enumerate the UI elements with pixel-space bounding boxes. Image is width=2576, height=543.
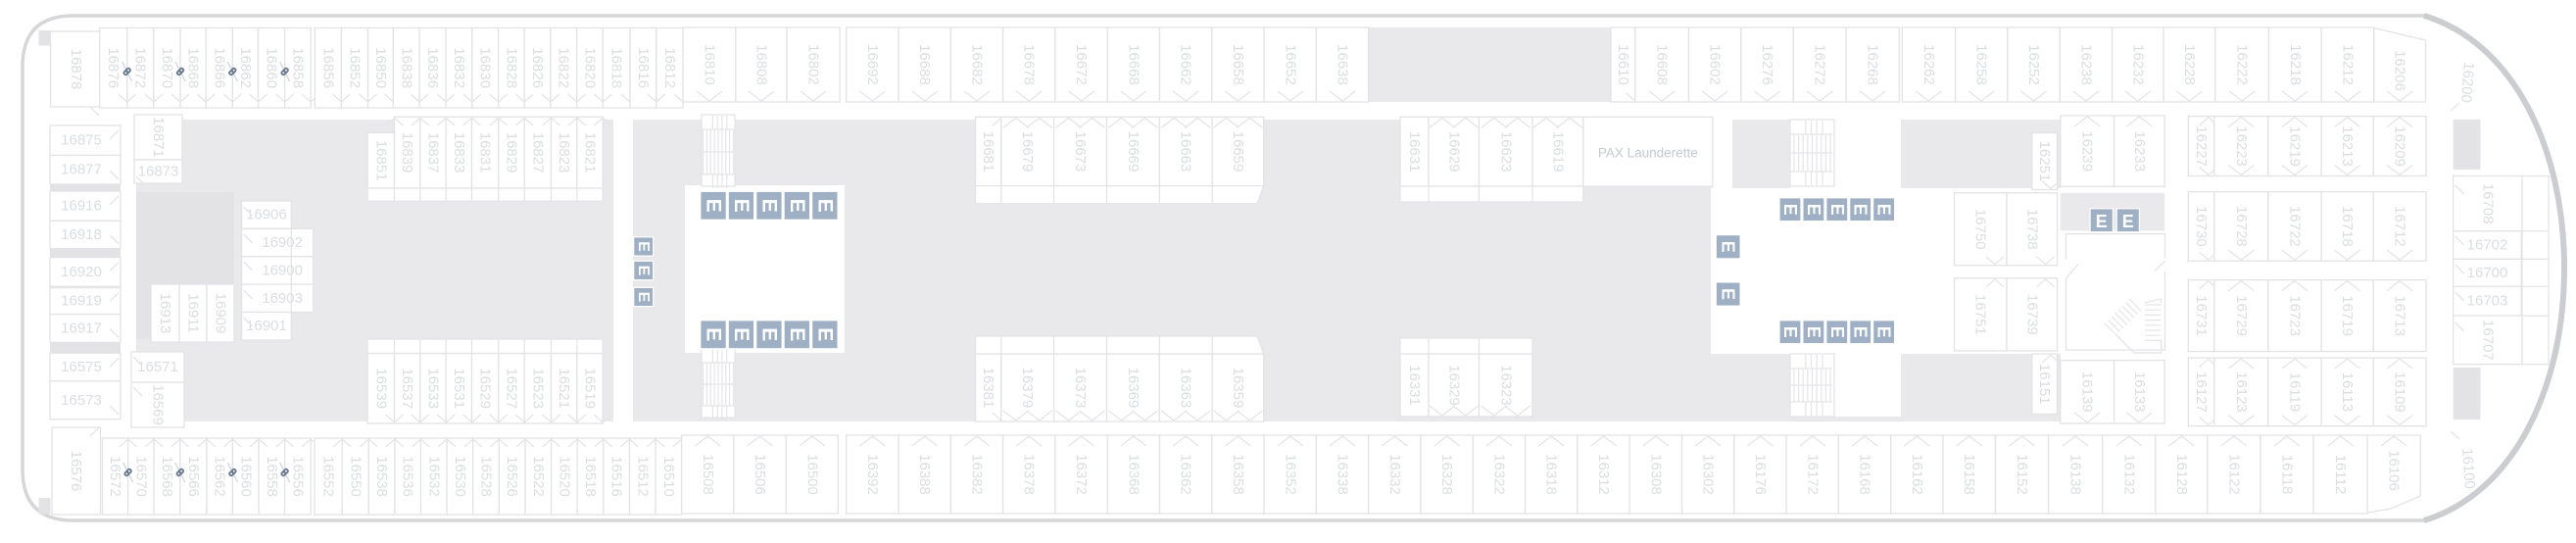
svg-text:16820: 16820 — [582, 47, 599, 88]
svg-text:16708: 16708 — [2479, 183, 2496, 224]
svg-text:16723: 16723 — [2286, 295, 2303, 336]
svg-text:16550: 16550 — [347, 456, 364, 497]
svg-text:16527: 16527 — [504, 368, 520, 409]
svg-text:16106: 16106 — [2386, 450, 2403, 491]
svg-text:16218: 16218 — [2287, 44, 2304, 85]
svg-text:16329: 16329 — [1445, 365, 1462, 406]
svg-text:16608: 16608 — [1654, 44, 1671, 85]
svg-text:16827: 16827 — [529, 132, 546, 173]
svg-text:16862: 16862 — [237, 47, 254, 88]
svg-text:16816: 16816 — [635, 47, 652, 88]
svg-text:16568: 16568 — [159, 456, 175, 497]
svg-text:16866: 16866 — [211, 47, 227, 88]
svg-text:16830: 16830 — [477, 47, 494, 88]
svg-text:E: E — [1874, 326, 1894, 338]
svg-text:16858: 16858 — [289, 47, 306, 88]
svg-text:16272: 16272 — [1812, 44, 1828, 85]
svg-text:16358: 16358 — [1230, 454, 1246, 495]
svg-text:16552: 16552 — [320, 456, 337, 497]
svg-text:16368: 16368 — [1125, 454, 1142, 495]
svg-text:16172: 16172 — [1804, 454, 1821, 495]
svg-text:16359: 16359 — [1230, 368, 1246, 409]
svg-text:16900: 16900 — [262, 263, 303, 279]
svg-text:16381: 16381 — [980, 368, 996, 409]
svg-text:16528: 16528 — [478, 456, 495, 497]
svg-text:16826: 16826 — [529, 47, 546, 88]
svg-text:E: E — [1851, 326, 1871, 338]
svg-text:16850: 16850 — [372, 47, 389, 88]
svg-text:16531: 16531 — [451, 368, 467, 409]
svg-text:16328: 16328 — [1438, 454, 1455, 495]
svg-text:16571: 16571 — [137, 359, 178, 375]
svg-text:16168: 16168 — [1857, 454, 1873, 495]
svg-text:E: E — [1719, 241, 1738, 253]
svg-text:16631: 16631 — [1406, 131, 1423, 173]
svg-text:16122: 16122 — [2225, 454, 2242, 495]
svg-text:E: E — [1804, 204, 1823, 216]
svg-text:16373: 16373 — [1072, 368, 1089, 409]
svg-text:16878: 16878 — [68, 49, 84, 90]
svg-text:16669: 16669 — [1125, 131, 1142, 173]
svg-text:16822: 16822 — [556, 47, 572, 88]
svg-text:16508: 16508 — [700, 454, 716, 495]
svg-text:16738: 16738 — [2023, 209, 2040, 250]
svg-text:16707: 16707 — [2479, 320, 2496, 361]
svg-text:16539: 16539 — [372, 368, 389, 409]
svg-text:16138: 16138 — [2067, 454, 2084, 495]
svg-text:16258: 16258 — [1973, 44, 1990, 85]
svg-text:16802: 16802 — [805, 44, 822, 85]
svg-text:16331: 16331 — [1406, 365, 1423, 406]
svg-text:16556: 16556 — [289, 456, 306, 497]
svg-text:16109: 16109 — [2392, 371, 2408, 413]
svg-text:16176: 16176 — [1752, 454, 1769, 495]
svg-text:16139: 16139 — [2079, 371, 2096, 413]
svg-text:16852: 16852 — [346, 47, 363, 88]
svg-text:E: E — [1851, 204, 1871, 216]
svg-text:16538: 16538 — [373, 456, 390, 497]
svg-text:16576: 16576 — [68, 451, 84, 492]
svg-text:E: E — [730, 199, 753, 213]
svg-text:16558: 16558 — [264, 456, 280, 497]
svg-text:16688: 16688 — [916, 44, 933, 85]
svg-text:16382: 16382 — [969, 454, 986, 495]
svg-text:16868: 16868 — [185, 47, 202, 88]
svg-text:16379: 16379 — [1019, 368, 1036, 409]
svg-text:E: E — [1827, 204, 1847, 216]
svg-text:16838: 16838 — [398, 47, 414, 88]
svg-text:16818: 16818 — [608, 47, 625, 88]
svg-text:16836: 16836 — [424, 47, 441, 88]
svg-text:16668: 16668 — [1125, 44, 1142, 85]
svg-text:16162: 16162 — [1909, 454, 1925, 495]
svg-text:16700: 16700 — [2467, 265, 2508, 281]
svg-text:16212: 16212 — [2339, 44, 2356, 85]
svg-text:16831: 16831 — [477, 132, 494, 173]
svg-text:16918: 16918 — [61, 226, 102, 243]
svg-text:16537: 16537 — [399, 368, 415, 409]
svg-text:16388: 16388 — [916, 454, 933, 495]
svg-text:16703: 16703 — [2467, 293, 2508, 310]
svg-text:16152: 16152 — [2014, 454, 2030, 495]
svg-text:16729: 16729 — [2233, 295, 2250, 336]
svg-text:16722: 16722 — [2286, 206, 2303, 247]
svg-text:E: E — [703, 199, 725, 213]
svg-text:16268: 16268 — [1865, 44, 1881, 85]
svg-text:16127: 16127 — [2193, 371, 2210, 413]
svg-text:E: E — [1827, 326, 1847, 338]
svg-text:16751: 16751 — [1972, 294, 1989, 335]
svg-text:16519: 16519 — [582, 368, 599, 409]
svg-text:E: E — [635, 266, 652, 276]
svg-text:16213: 16213 — [2339, 125, 2356, 167]
svg-text:E: E — [2096, 212, 2108, 231]
svg-text:16909: 16909 — [213, 293, 229, 334]
svg-text:16619: 16619 — [1549, 131, 1566, 173]
svg-text:16875: 16875 — [61, 132, 102, 149]
svg-text:16312: 16312 — [1595, 454, 1612, 495]
svg-text:16573: 16573 — [61, 392, 102, 409]
svg-text:16917: 16917 — [61, 321, 102, 337]
svg-text:16570: 16570 — [132, 456, 149, 497]
svg-text:16372: 16372 — [1073, 454, 1090, 495]
svg-text:16352: 16352 — [1282, 454, 1298, 495]
svg-text:16913: 16913 — [157, 293, 173, 334]
svg-text:16378: 16378 — [1021, 454, 1038, 495]
svg-text:16100: 16100 — [2458, 448, 2478, 490]
svg-text:16662: 16662 — [1178, 44, 1194, 85]
svg-text:16566: 16566 — [185, 456, 202, 497]
svg-text:16151: 16151 — [2036, 364, 2053, 405]
svg-text:16522: 16522 — [530, 456, 547, 497]
svg-text:16518: 16518 — [582, 456, 599, 497]
svg-text:E: E — [2122, 212, 2134, 231]
svg-text:16132: 16132 — [2120, 454, 2137, 495]
svg-text:E: E — [703, 327, 725, 341]
svg-text:16238: 16238 — [2077, 44, 2094, 85]
svg-text:16681: 16681 — [980, 131, 996, 173]
svg-text:16673: 16673 — [1072, 131, 1089, 173]
svg-text:16512: 16512 — [634, 456, 651, 497]
svg-text:16227: 16227 — [2193, 125, 2210, 167]
svg-text:E: E — [813, 199, 836, 213]
svg-text:16323: 16323 — [1497, 365, 1514, 406]
svg-text:16719: 16719 — [2339, 295, 2356, 336]
svg-text:16821: 16821 — [582, 132, 599, 173]
svg-text:16119: 16119 — [2286, 372, 2303, 413]
svg-text:16128: 16128 — [2173, 454, 2190, 495]
svg-text:16638: 16638 — [1335, 44, 1351, 85]
svg-text:16876: 16876 — [105, 47, 122, 88]
svg-text:16916: 16916 — [61, 198, 102, 215]
svg-text:16872: 16872 — [132, 47, 149, 88]
svg-text:E: E — [757, 199, 780, 213]
svg-text:16870: 16870 — [159, 47, 175, 88]
svg-text:16232: 16232 — [2129, 44, 2146, 85]
svg-text:16209: 16209 — [2392, 125, 2408, 167]
svg-text:16500: 16500 — [803, 454, 820, 495]
svg-text:16702: 16702 — [2467, 237, 2508, 254]
svg-text:16575: 16575 — [61, 359, 102, 375]
svg-text:16302: 16302 — [1700, 454, 1717, 495]
svg-text:16252: 16252 — [2025, 44, 2042, 85]
svg-text:16133: 16133 — [2131, 371, 2148, 413]
svg-text:16523: 16523 — [529, 368, 546, 409]
svg-text:16516: 16516 — [608, 456, 625, 497]
svg-text:16529: 16529 — [477, 368, 494, 409]
svg-text:16338: 16338 — [1335, 454, 1351, 495]
svg-text:16902: 16902 — [262, 234, 303, 251]
svg-text:16239: 16239 — [2079, 130, 2096, 172]
svg-text:16678: 16678 — [1021, 44, 1038, 85]
svg-text:16713: 16713 — [2392, 295, 2408, 336]
svg-text:16679: 16679 — [1019, 131, 1036, 173]
svg-text:16828: 16828 — [503, 47, 519, 88]
svg-text:E: E — [757, 327, 780, 341]
svg-text:E: E — [1804, 326, 1823, 338]
svg-text:16610: 16610 — [1615, 44, 1631, 85]
svg-text:16219: 16219 — [2286, 125, 2303, 167]
svg-text:16223: 16223 — [2233, 125, 2250, 167]
svg-text:16233: 16233 — [2131, 130, 2148, 172]
svg-text:E: E — [1874, 204, 1894, 216]
svg-text:16682: 16682 — [969, 44, 986, 85]
svg-text:16903: 16903 — [262, 290, 303, 307]
svg-text:16510: 16510 — [660, 456, 677, 497]
svg-text:16812: 16812 — [661, 47, 678, 88]
svg-text:16332: 16332 — [1386, 454, 1403, 495]
svg-text:16920: 16920 — [61, 264, 102, 280]
svg-text:16222: 16222 — [2234, 44, 2251, 85]
svg-text:16919: 16919 — [61, 293, 102, 310]
svg-text:16200: 16200 — [2457, 62, 2477, 104]
svg-text:16629: 16629 — [1445, 131, 1462, 173]
svg-text:16837: 16837 — [425, 132, 442, 173]
svg-text:E: E — [635, 292, 652, 303]
svg-text:16659: 16659 — [1230, 131, 1246, 173]
svg-text:16663: 16663 — [1178, 131, 1194, 173]
svg-text:16506: 16506 — [752, 454, 768, 495]
svg-text:16730: 16730 — [2193, 206, 2210, 247]
svg-text:16856: 16856 — [319, 47, 336, 88]
svg-text:16911: 16911 — [185, 293, 202, 333]
svg-text:16308: 16308 — [1647, 454, 1664, 495]
svg-text:16860: 16860 — [264, 47, 280, 88]
svg-text:16808: 16808 — [753, 44, 770, 85]
svg-text:16692: 16692 — [864, 44, 881, 85]
svg-text:E: E — [1719, 288, 1738, 300]
svg-text:16728: 16728 — [2233, 206, 2250, 247]
svg-text:16560: 16560 — [237, 456, 254, 497]
svg-text:16562: 16562 — [212, 456, 228, 497]
svg-text:E: E — [786, 199, 808, 213]
svg-text:16533: 16533 — [425, 368, 442, 409]
svg-text:16623: 16623 — [1497, 131, 1514, 173]
svg-text:E: E — [1780, 204, 1800, 216]
svg-text:16851: 16851 — [372, 140, 389, 181]
svg-text:16362: 16362 — [1178, 454, 1194, 495]
svg-text:16369: 16369 — [1125, 368, 1142, 409]
svg-text:16873: 16873 — [138, 164, 179, 180]
svg-text:16392: 16392 — [864, 454, 881, 495]
svg-text:16536: 16536 — [400, 456, 416, 497]
svg-text:16318: 16318 — [1543, 454, 1560, 495]
svg-text:E: E — [635, 241, 652, 252]
svg-text:16739: 16739 — [2023, 294, 2040, 335]
svg-text:16530: 16530 — [452, 456, 468, 497]
svg-text:16871: 16871 — [150, 117, 167, 158]
svg-text:16572: 16572 — [107, 456, 123, 497]
svg-text:E: E — [786, 327, 808, 341]
svg-text:16810: 16810 — [702, 44, 718, 85]
svg-text:16829: 16829 — [504, 132, 520, 173]
svg-text:16112: 16112 — [2332, 455, 2349, 495]
svg-text:16276: 16276 — [1759, 44, 1775, 85]
svg-text:16262: 16262 — [1920, 44, 1937, 85]
svg-text:16602: 16602 — [1707, 44, 1724, 85]
svg-text:16718: 16718 — [2339, 206, 2356, 247]
svg-text:16322: 16322 — [1490, 454, 1507, 495]
svg-text:16526: 16526 — [504, 456, 520, 497]
svg-text:16118: 16118 — [2278, 455, 2295, 495]
svg-text:16832: 16832 — [451, 47, 467, 88]
svg-text:16672: 16672 — [1073, 44, 1090, 85]
svg-text:E: E — [813, 327, 836, 341]
svg-text:16731: 16731 — [2193, 295, 2210, 336]
svg-text:16532: 16532 — [425, 456, 442, 497]
svg-text:16158: 16158 — [1961, 454, 1977, 495]
svg-text:16363: 16363 — [1178, 368, 1194, 409]
svg-text:16839: 16839 — [399, 132, 415, 173]
svg-text:16877: 16877 — [61, 162, 102, 178]
svg-text:16658: 16658 — [1230, 44, 1246, 85]
svg-text:16712: 16712 — [2392, 206, 2408, 247]
svg-text:E: E — [730, 327, 753, 341]
svg-text:16251: 16251 — [2036, 141, 2053, 182]
svg-text:16521: 16521 — [556, 368, 572, 409]
svg-text:16520: 16520 — [556, 456, 572, 497]
svg-text:16833: 16833 — [451, 132, 467, 173]
svg-text:16823: 16823 — [556, 132, 572, 173]
svg-text:16123: 16123 — [2233, 371, 2250, 413]
svg-text:16206: 16206 — [2392, 50, 2408, 91]
svg-text:PAX Launderette: PAX Launderette — [1598, 146, 1698, 161]
svg-text:E: E — [1780, 326, 1800, 338]
svg-text:16652: 16652 — [1282, 44, 1298, 85]
svg-text:16228: 16228 — [2181, 44, 2198, 85]
svg-text:16113: 16113 — [2339, 372, 2356, 413]
svg-text:16750: 16750 — [1972, 209, 1989, 250]
svg-text:16569: 16569 — [150, 384, 167, 425]
